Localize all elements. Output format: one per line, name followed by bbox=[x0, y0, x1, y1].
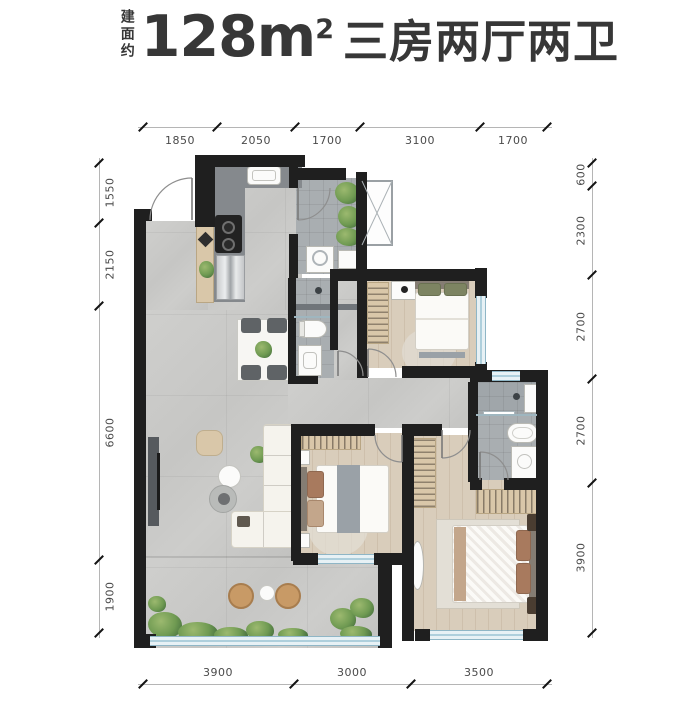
dimension-line-top bbox=[138, 127, 552, 128]
wall bbox=[470, 424, 478, 436]
fridge bbox=[216, 255, 245, 300]
bed-pillow bbox=[418, 283, 441, 296]
dim-label: 2050 bbox=[226, 134, 286, 147]
bed-pillow bbox=[516, 563, 531, 594]
bed-throw bbox=[454, 527, 466, 601]
dim-label: 2700 bbox=[575, 297, 588, 357]
balcony-chair bbox=[228, 583, 254, 609]
window bbox=[318, 554, 374, 564]
kitchen-sink-basin bbox=[252, 170, 276, 181]
wall bbox=[289, 160, 298, 188]
bed-pillow bbox=[444, 283, 467, 296]
window bbox=[430, 630, 523, 640]
towel-bar-icon bbox=[483, 411, 515, 415]
wall bbox=[356, 172, 367, 280]
wall bbox=[330, 269, 486, 281]
bed-pillow bbox=[516, 530, 531, 561]
vanity-basin bbox=[303, 352, 317, 369]
bed-bench bbox=[419, 352, 465, 358]
dim-label: 3000 bbox=[322, 666, 382, 679]
dim-label: 2150 bbox=[104, 235, 117, 295]
wall bbox=[357, 281, 367, 378]
tray-icon bbox=[218, 493, 230, 505]
wall bbox=[288, 376, 318, 384]
title-block: 建面约 128m2 三房两厅两卫 bbox=[118, 4, 619, 70]
laundry-sink bbox=[338, 250, 358, 269]
wall bbox=[288, 278, 296, 384]
bathtub-inner bbox=[512, 427, 533, 439]
dining-chair bbox=[241, 318, 261, 333]
dim-label: 1700 bbox=[297, 134, 357, 147]
dimension-line-left bbox=[99, 158, 100, 638]
dim-label: 2300 bbox=[575, 201, 588, 261]
wall bbox=[414, 424, 442, 436]
bedroom2-bed bbox=[415, 292, 469, 350]
wall bbox=[289, 234, 298, 278]
wall bbox=[415, 629, 430, 641]
balcony-railing bbox=[150, 636, 380, 646]
wall bbox=[291, 425, 301, 561]
balcony-chair bbox=[275, 583, 301, 609]
dim-label: 1700 bbox=[483, 134, 543, 147]
dim-label: 6600 bbox=[104, 403, 117, 463]
window bbox=[492, 371, 520, 381]
master-wardrobe bbox=[476, 489, 538, 514]
bed-runner bbox=[337, 465, 360, 533]
dining-chair bbox=[267, 318, 287, 333]
wall bbox=[504, 478, 548, 490]
wall bbox=[536, 370, 548, 641]
dim-label: 1900 bbox=[104, 567, 117, 627]
bed-fold-line bbox=[416, 318, 468, 320]
shower-head-icon bbox=[513, 393, 520, 400]
shower-head-icon bbox=[315, 287, 322, 294]
dim-label: 3100 bbox=[390, 134, 450, 147]
dim-label: 3500 bbox=[449, 666, 509, 679]
dim-label: 1850 bbox=[150, 134, 210, 147]
dimension-line-bottom bbox=[138, 684, 552, 685]
dim-label: 3900 bbox=[575, 528, 588, 588]
title-area-value: 128m bbox=[141, 4, 315, 70]
wall bbox=[523, 629, 548, 641]
wall bbox=[294, 168, 346, 180]
washer-door-icon bbox=[312, 250, 328, 266]
dining-chair bbox=[267, 365, 287, 380]
title-area-sup: 2 bbox=[315, 14, 333, 45]
corridor-shelf bbox=[412, 438, 436, 508]
lamp-icon bbox=[401, 286, 408, 293]
plant-icon bbox=[255, 341, 272, 358]
title-area: 128m2 bbox=[141, 4, 333, 70]
wall bbox=[291, 424, 375, 436]
wall bbox=[357, 366, 368, 378]
toilet-tank bbox=[299, 321, 305, 337]
stove-burner bbox=[222, 238, 235, 251]
dining-chair bbox=[241, 365, 261, 380]
bed-pillow bbox=[307, 471, 324, 498]
dim-label: 2700 bbox=[575, 401, 588, 461]
balcony-table bbox=[259, 585, 275, 601]
dim-label: 1550 bbox=[104, 163, 117, 223]
bed-pillow bbox=[307, 500, 324, 527]
wall bbox=[475, 268, 487, 298]
dimension-line-right bbox=[592, 158, 593, 638]
floorplan-page: 建面约 128m2 三房两厅两卫 bbox=[0, 0, 700, 715]
wall bbox=[134, 209, 152, 221]
plant-icon bbox=[148, 596, 166, 612]
dim-label: 600 bbox=[575, 145, 588, 205]
dim-label: 3900 bbox=[188, 666, 248, 679]
wall bbox=[293, 553, 318, 565]
wall bbox=[402, 424, 414, 641]
wall bbox=[470, 478, 482, 490]
title-layout: 三房两厅两卫 bbox=[343, 5, 619, 70]
wall bbox=[134, 209, 146, 648]
vanity-basin bbox=[517, 454, 532, 469]
wall bbox=[374, 553, 414, 565]
sofa-pillow bbox=[237, 516, 250, 527]
title-prefix: 建面约 bbox=[118, 9, 135, 65]
plant-icon bbox=[199, 261, 214, 278]
wall bbox=[378, 553, 392, 648]
bedroom2-wardrobe bbox=[367, 282, 389, 344]
window bbox=[476, 296, 486, 364]
wall bbox=[330, 278, 338, 350]
armchair bbox=[196, 430, 223, 456]
tv-icon bbox=[157, 453, 160, 510]
stove-burner bbox=[222, 221, 235, 234]
corridor-floor bbox=[288, 378, 480, 428]
kitchen-bar-counter bbox=[290, 304, 360, 310]
plant-icon bbox=[350, 598, 374, 618]
